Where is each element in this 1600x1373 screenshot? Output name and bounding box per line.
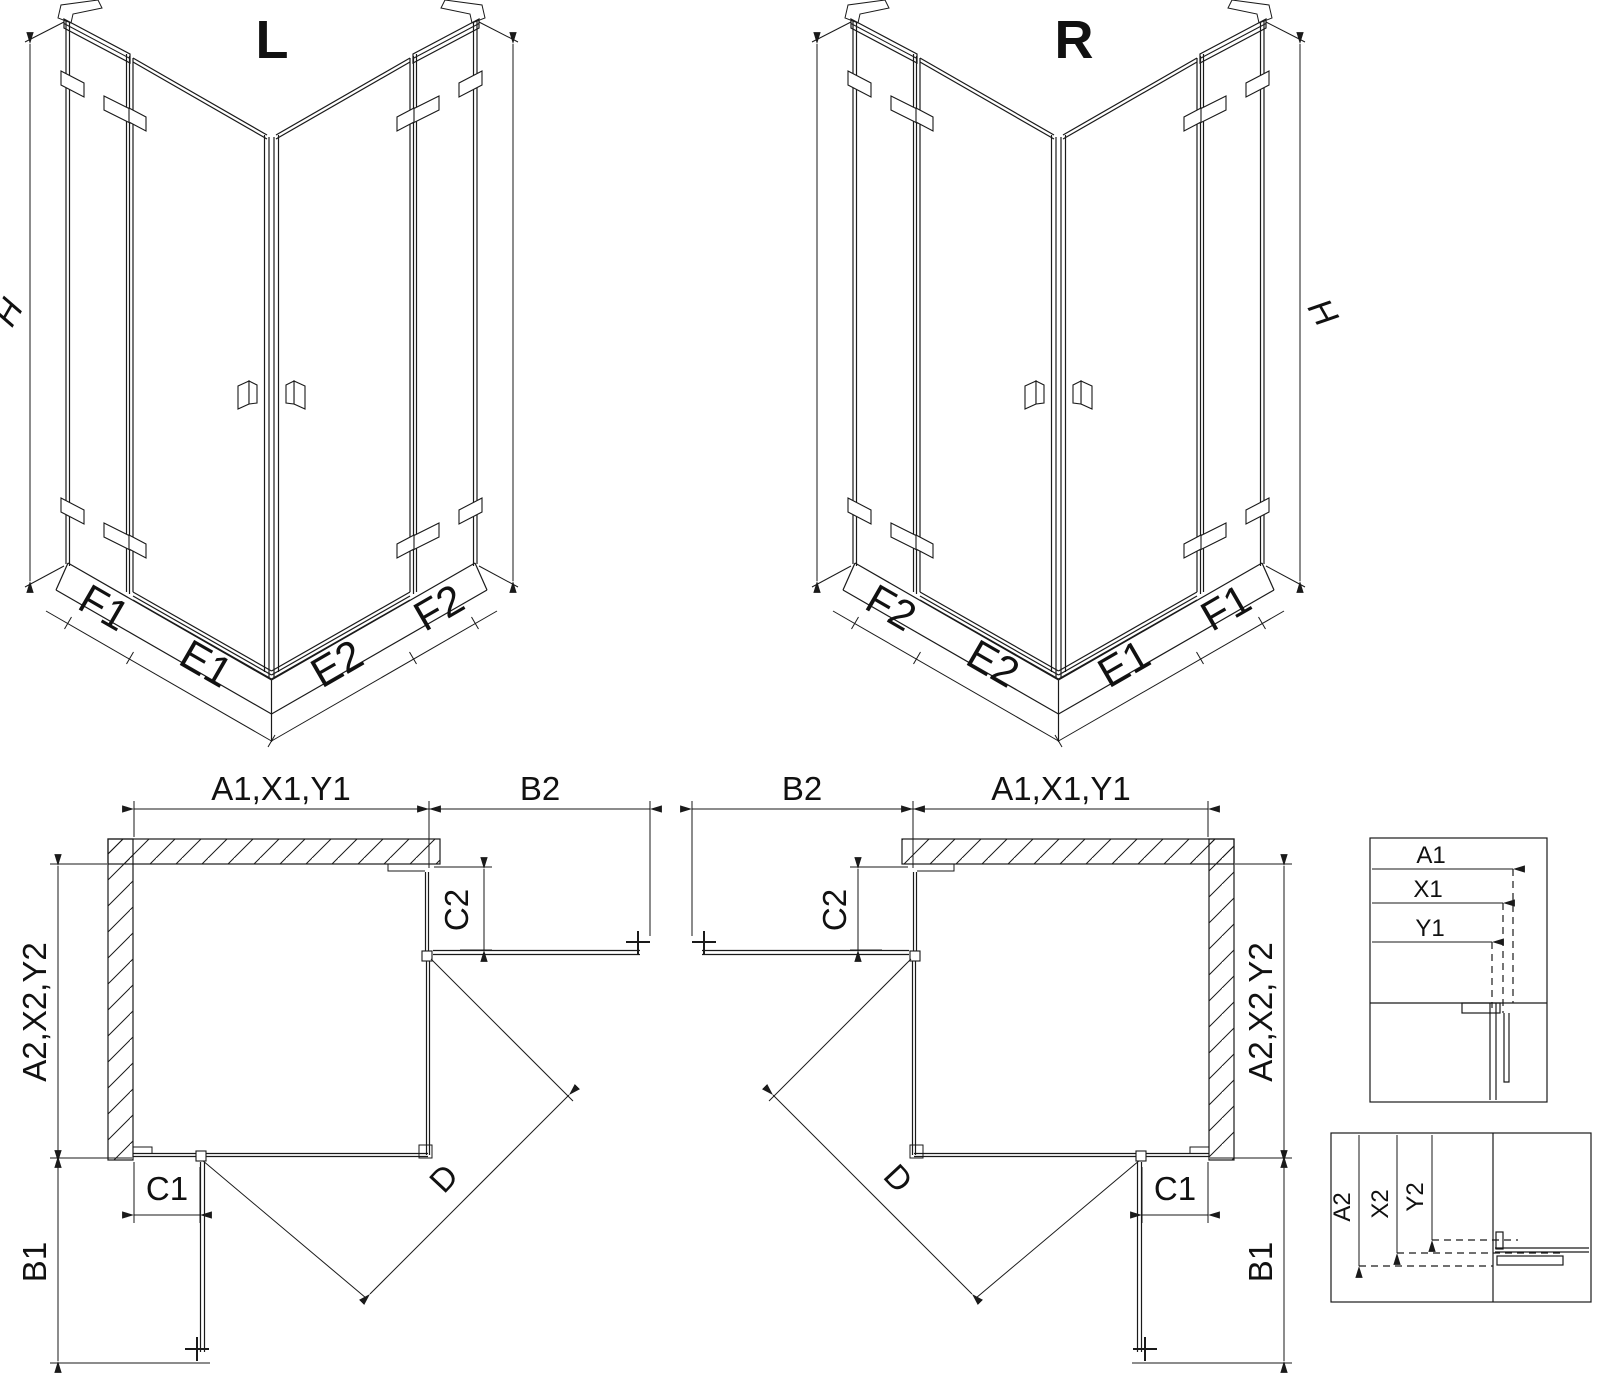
iso-left-seg-f2: F2 xyxy=(406,575,472,640)
detail-depth-y2: Y2 xyxy=(1402,1182,1429,1211)
plan-left-return-top: B2 xyxy=(520,770,560,807)
plan-right-walls xyxy=(902,839,1234,1160)
plan-right-panel-bottom: C1 xyxy=(1154,1170,1196,1207)
iso-left-title: L xyxy=(256,10,289,70)
plan-left-panel-top: C2 xyxy=(438,889,475,931)
technical-drawing-sheet: L H F1 E1 E2 F2 R H F2 E2 E1 F1 xyxy=(0,0,1600,1373)
detail-depth-a2: A2 xyxy=(1329,1192,1356,1221)
plan-left-walls xyxy=(108,839,440,1160)
plan-right-door-diagonal: D xyxy=(877,1157,920,1200)
detail-diagram-widths: A1 X1 Y1 xyxy=(1370,838,1547,1102)
iso-right-seg-f1: F1 xyxy=(1193,575,1259,640)
iso-left-seg-e2: E2 xyxy=(303,630,371,696)
plan-view-right-graphics xyxy=(692,801,1292,1363)
detail-width-y1: Y1 xyxy=(1415,915,1444,942)
detail-diagram-depths: A2 X2 Y2 xyxy=(1329,1133,1591,1302)
iso-right-height-label: H xyxy=(1300,292,1345,333)
drawing-svg: L H F1 E1 E2 F2 R H F2 E2 E1 F1 xyxy=(0,0,1600,1373)
iso-right-seg-e2: E2 xyxy=(959,630,1027,696)
plan-left-door-diagonal: D xyxy=(422,1157,465,1200)
iso-right-seg-e1: E1 xyxy=(1090,630,1158,696)
iso-view-right-graphics xyxy=(812,0,1305,747)
detail-depth-x2: X2 xyxy=(1367,1189,1394,1218)
iso-right-title: R xyxy=(1055,10,1094,70)
plan-right-return-bottom: B1 xyxy=(1242,1242,1279,1282)
detail-width-a1: A1 xyxy=(1416,842,1445,869)
plan-right-panel-top: C2 xyxy=(816,889,853,931)
plan-left-width-top: A1,X1,Y1 xyxy=(211,770,350,807)
iso-view-left-graphics xyxy=(25,0,518,747)
plan-view-left-graphics xyxy=(50,801,650,1363)
plan-left-depth-side: A2,X2,Y2 xyxy=(16,942,53,1081)
iso-view-left-labels: L H F1 E1 E2 F2 xyxy=(0,10,472,697)
plan-right-depth-side: A2,X2,Y2 xyxy=(1242,942,1279,1081)
iso-right-seg-f2: F2 xyxy=(858,575,924,640)
plan-right-return-top: B2 xyxy=(782,770,822,807)
plan-left-return-bottom: B1 xyxy=(16,1242,53,1282)
iso-left-height-label: H xyxy=(0,292,31,333)
plan-right-width-top: A1,X1,Y1 xyxy=(991,770,1130,807)
detail-width-x1: X1 xyxy=(1413,876,1442,903)
iso-left-seg-f1: F1 xyxy=(71,575,137,640)
plan-left-panel-bottom: C1 xyxy=(146,1170,188,1207)
iso-left-seg-e1: E1 xyxy=(172,630,240,696)
